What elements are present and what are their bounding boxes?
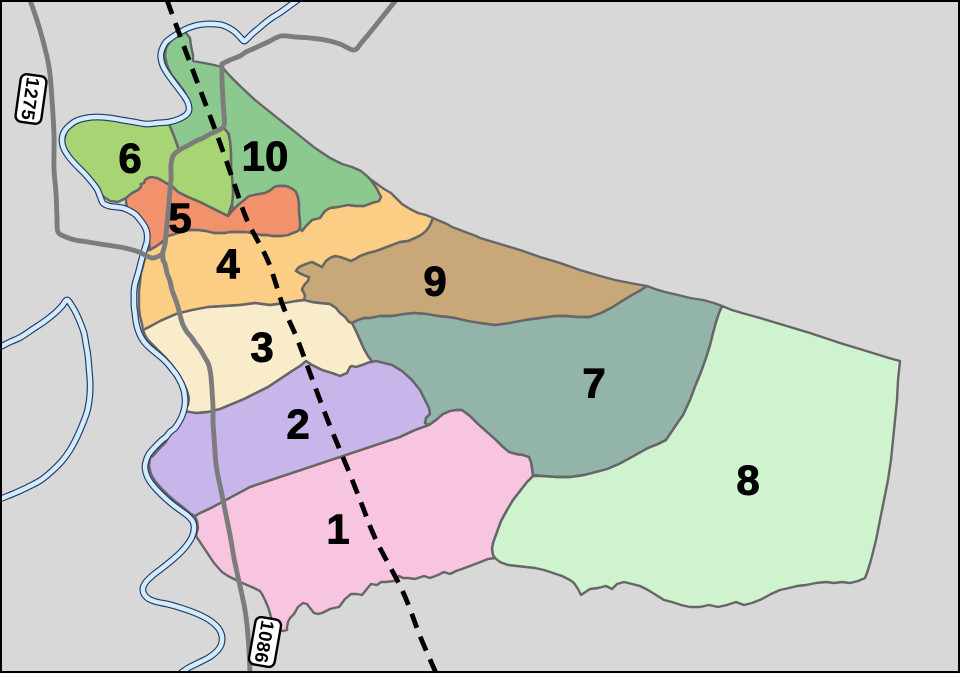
svg-text:6: 6 <box>118 135 141 182</box>
svg-text:2: 2 <box>286 401 309 448</box>
svg-text:4: 4 <box>216 241 240 288</box>
svg-text:9: 9 <box>423 258 446 305</box>
svg-text:5: 5 <box>168 195 191 242</box>
svg-text:1: 1 <box>326 506 349 553</box>
svg-text:10: 10 <box>242 133 289 180</box>
svg-text:8: 8 <box>736 457 759 504</box>
svg-text:3: 3 <box>250 324 273 371</box>
svg-text:7: 7 <box>582 360 605 407</box>
